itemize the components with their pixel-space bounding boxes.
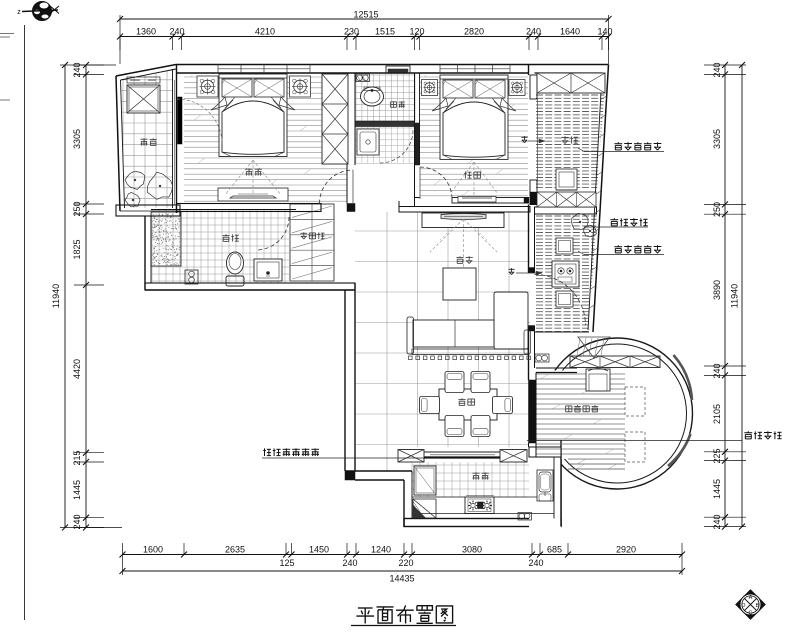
- svg-text:2920: 2920: [616, 545, 636, 555]
- svg-text:3305: 3305: [72, 129, 82, 149]
- svg-text:240: 240: [528, 558, 543, 568]
- svg-text:2105: 2105: [712, 404, 722, 424]
- svg-text:12515: 12515: [353, 9, 378, 19]
- svg-text:240: 240: [712, 62, 722, 77]
- svg-text:250: 250: [712, 202, 722, 217]
- svg-text:240: 240: [526, 27, 541, 37]
- svg-text:1515: 1515: [375, 27, 395, 37]
- svg-text:120: 120: [409, 27, 424, 37]
- svg-text:11940: 11940: [730, 284, 740, 308]
- svg-text:3080: 3080: [462, 545, 482, 555]
- svg-text:1450: 1450: [309, 545, 329, 555]
- svg-text:225: 225: [712, 448, 722, 463]
- svg-text:140: 140: [597, 27, 612, 37]
- svg-text:A: A: [749, 595, 753, 601]
- svg-text:1445: 1445: [712, 479, 722, 499]
- svg-text:4420: 4420: [72, 359, 82, 379]
- svg-text:1240: 1240: [371, 545, 391, 555]
- svg-text:11940: 11940: [51, 284, 61, 308]
- svg-text:C: C: [749, 611, 753, 617]
- svg-text:14435: 14435: [389, 574, 414, 584]
- svg-text:215: 215: [72, 450, 82, 465]
- svg-text:125: 125: [279, 558, 294, 568]
- svg-text:220: 220: [398, 558, 413, 568]
- svg-text:D: D: [742, 603, 746, 609]
- svg-text:1640: 1640: [560, 27, 580, 37]
- svg-text:230: 230: [344, 27, 359, 37]
- svg-text:240: 240: [169, 27, 184, 37]
- svg-text:240: 240: [72, 514, 82, 529]
- svg-text:1825: 1825: [72, 239, 82, 259]
- svg-text:250: 250: [72, 201, 82, 216]
- svg-text:1600: 1600: [143, 545, 163, 555]
- svg-text:240: 240: [712, 363, 722, 378]
- svg-text:240: 240: [342, 558, 357, 568]
- svg-text:2635: 2635: [225, 545, 245, 555]
- svg-text:240: 240: [72, 62, 82, 77]
- svg-text:2820: 2820: [464, 27, 484, 37]
- svg-text:4210: 4210: [255, 27, 275, 37]
- svg-text:1445: 1445: [72, 480, 82, 500]
- svg-text:3305: 3305: [712, 129, 722, 149]
- svg-text:3890: 3890: [712, 280, 722, 300]
- svg-text:z: z: [17, 9, 21, 16]
- svg-text:B: B: [756, 603, 760, 609]
- svg-text:240: 240: [712, 514, 722, 529]
- svg-text:685: 685: [547, 545, 562, 555]
- svg-text:1360: 1360: [136, 27, 156, 37]
